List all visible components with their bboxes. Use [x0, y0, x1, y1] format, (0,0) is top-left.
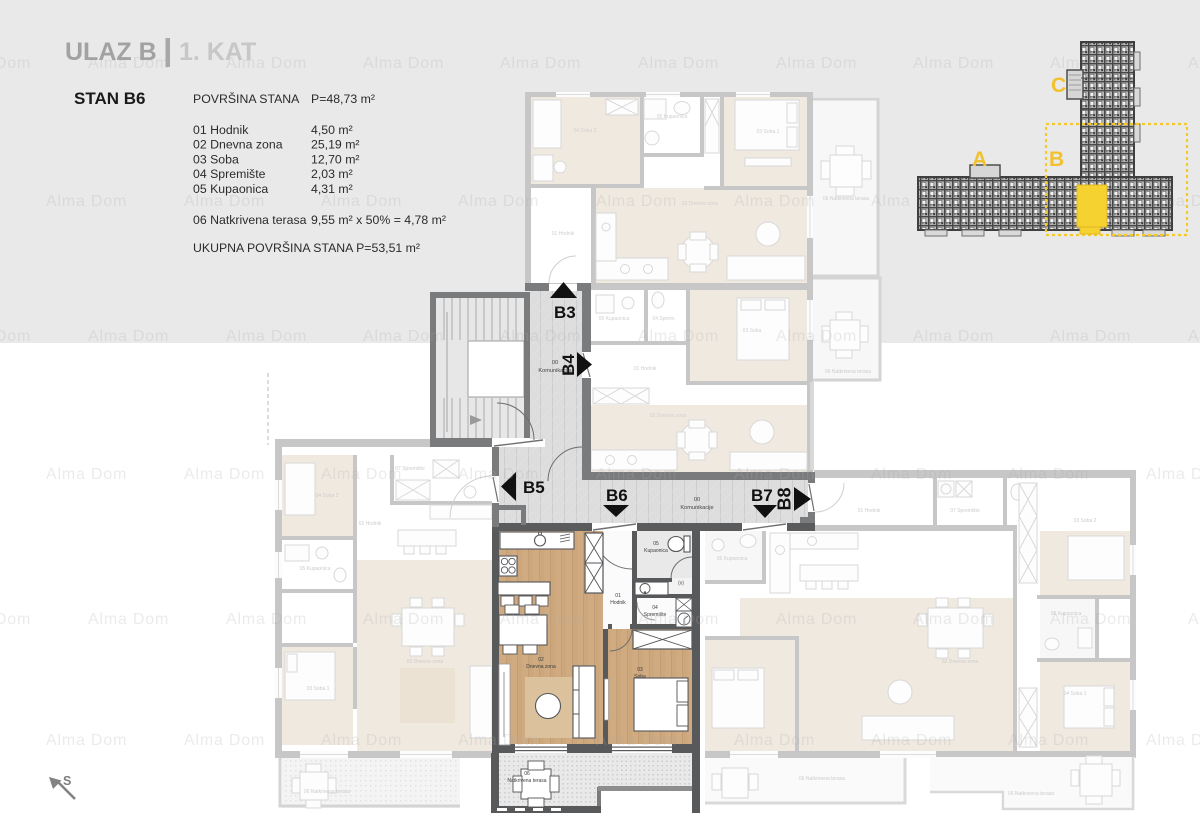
- svg-text:Alma Dom: Alma Dom: [734, 732, 815, 749]
- svg-text:01 Hodnik: 01 Hodnik: [634, 366, 657, 372]
- svg-text:Alma Dom: Alma Dom: [1008, 732, 1089, 749]
- svg-text:02 Dnevna zona: 02 Dnevna zona: [407, 659, 444, 665]
- svg-text:B8: B8: [775, 487, 795, 510]
- svg-text:05 Kupaonica: 05 Kupaonica: [717, 556, 748, 562]
- svg-text:03 Soba 2: 03 Soba 2: [1074, 518, 1097, 524]
- svg-text:Alma Dom: Alma Dom: [46, 466, 127, 483]
- svg-text:01 Hodnik: 01 Hodnik: [193, 123, 249, 137]
- svg-text:03 Soba: 03 Soba: [193, 152, 239, 166]
- svg-text:B6: B6: [606, 486, 628, 505]
- svg-text:Alma Dom: Alma Dom: [1146, 466, 1200, 483]
- svg-text:Natkrivena terasa: Natkrivena terasa: [507, 778, 546, 784]
- svg-text:Alma Dom: Alma Dom: [363, 611, 444, 628]
- svg-text:Alma Dom: Alma Dom: [1188, 328, 1200, 345]
- svg-text:06 Natkrivena terasa: 06 Natkrivena terasa: [825, 369, 871, 375]
- svg-text:B3: B3: [554, 303, 576, 322]
- svg-text:Alma Dom: Alma Dom: [226, 55, 307, 72]
- svg-text:2,03 m²: 2,03 m²: [311, 167, 353, 181]
- svg-text:Alma Dom: Alma Dom: [871, 732, 952, 749]
- svg-text:Alma Dom: Alma Dom: [184, 466, 265, 483]
- svg-text:03 Soba 1: 03 Soba 1: [757, 129, 780, 135]
- svg-text:06 Natkrivena terasa: 06 Natkrivena terasa: [799, 776, 845, 782]
- svg-text:B: B: [1049, 148, 1064, 171]
- svg-text:Alma Dom: Alma Dom: [913, 55, 994, 72]
- svg-text:Alma Dom: Alma Dom: [88, 611, 169, 628]
- svg-text:06 Natkrivena terasa: 06 Natkrivena terasa: [823, 196, 869, 202]
- svg-text:12,70 m²: 12,70 m²: [311, 152, 360, 166]
- svg-text:05 Kupaonica: 05 Kupaonica: [300, 566, 331, 572]
- svg-text:C: C: [1051, 74, 1066, 97]
- svg-text:(x): (x): [678, 581, 684, 587]
- svg-text:Alma Dom: Alma Dom: [363, 55, 444, 72]
- svg-text:00: 00: [694, 497, 700, 503]
- svg-text:Alma Dom: Alma Dom: [363, 328, 444, 345]
- svg-text:Alma Dom: Alma Dom: [0, 328, 31, 345]
- svg-text:Alma Dom: Alma Dom: [88, 328, 169, 345]
- svg-text:03: 03: [637, 667, 643, 673]
- svg-text:S: S: [63, 774, 71, 788]
- svg-text:02 Dnevna zona: 02 Dnevna zona: [942, 659, 979, 665]
- svg-text:Alma Dom: Alma Dom: [638, 328, 719, 345]
- svg-text:02 Dnevna zona: 02 Dnevna zona: [650, 413, 687, 419]
- svg-text:POVRŠINA STANA: POVRŠINA STANA: [193, 91, 300, 106]
- svg-text:05: 05: [653, 541, 659, 547]
- svg-text:06: 06: [524, 771, 530, 777]
- svg-text:05 Kupaonica: 05 Kupaonica: [599, 316, 630, 322]
- svg-text:4,50 m²: 4,50 m²: [311, 123, 353, 137]
- svg-text:Alma Dom: Alma Dom: [458, 732, 539, 749]
- svg-text:Alma Dom: Alma Dom: [1146, 732, 1200, 749]
- svg-text:04 Soba 1: 04 Soba 1: [1064, 691, 1087, 697]
- svg-text:Alma Dom: Alma Dom: [776, 55, 857, 72]
- svg-text:Alma Dom: Alma Dom: [1188, 611, 1200, 628]
- svg-text:A: A: [972, 148, 987, 171]
- svg-text:Alma Dom: Alma Dom: [184, 193, 265, 210]
- svg-text:02 Dnevna zona: 02 Dnevna zona: [193, 138, 283, 152]
- svg-text:Alma Dom: Alma Dom: [458, 466, 539, 483]
- svg-text:03 Soba: 03 Soba: [743, 328, 762, 334]
- svg-text:Alma Dom: Alma Dom: [638, 55, 719, 72]
- svg-text:B7: B7: [751, 486, 773, 505]
- svg-text:Alma Dom: Alma Dom: [596, 732, 677, 749]
- svg-text:Alma Dom: Alma Dom: [321, 732, 402, 749]
- svg-text:Alma Dom: Alma Dom: [321, 193, 402, 210]
- svg-text:UKUPNA POVRŠINA STANA P=53,51: UKUPNA POVRŠINA STANA P=53,51 m²: [193, 240, 420, 255]
- svg-text:00: 00: [552, 360, 558, 366]
- svg-text:Alma Dom: Alma Dom: [638, 611, 719, 628]
- svg-text:25,19 m²: 25,19 m²: [311, 138, 360, 152]
- svg-text:04 Spremište: 04 Spremište: [193, 167, 266, 181]
- svg-text:Dnevna zona: Dnevna zona: [526, 664, 556, 670]
- svg-text:07 Spremište: 07 Spremište: [950, 508, 980, 514]
- svg-text:01 Hodnik: 01 Hodnik: [552, 231, 575, 237]
- svg-text:STAN B6: STAN B6: [74, 89, 145, 108]
- svg-text:Alma Dom: Alma Dom: [0, 611, 31, 628]
- svg-text:04 Soba 2: 04 Soba 2: [316, 493, 339, 499]
- svg-text:04 Soba 2: 04 Soba 2: [574, 128, 597, 134]
- svg-text:Hodnik: Hodnik: [610, 600, 626, 606]
- svg-text:Alma Dom: Alma Dom: [0, 55, 31, 72]
- svg-text:06 Natkrivena terasa: 06 Natkrivena terasa: [304, 789, 350, 795]
- svg-text:05 Kupaonica: 05 Kupaonica: [657, 114, 688, 120]
- svg-text:01 Hodnik: 01 Hodnik: [359, 521, 382, 527]
- svg-text:01 Hodnik: 01 Hodnik: [858, 508, 881, 514]
- svg-text:Alma Dom: Alma Dom: [871, 466, 952, 483]
- svg-text:02: 02: [538, 657, 544, 663]
- svg-text:Kupaonica: Kupaonica: [644, 548, 668, 554]
- svg-text:9,55 m² x 50% = 4,78 m²: 9,55 m² x 50% = 4,78 m²: [311, 213, 446, 227]
- svg-text:Alma Dom: Alma Dom: [913, 328, 994, 345]
- svg-text:Komunikacije: Komunikacije: [680, 505, 713, 511]
- svg-text:Alma Dom: Alma Dom: [1050, 611, 1131, 628]
- svg-text:Alma Dom: Alma Dom: [46, 193, 127, 210]
- svg-text:01: 01: [615, 593, 621, 599]
- svg-text:06 Natkrivena terasa: 06 Natkrivena terasa: [1008, 791, 1054, 797]
- svg-text:04 Sprem.: 04 Sprem.: [652, 316, 675, 322]
- svg-text:Alma Dom: Alma Dom: [226, 328, 307, 345]
- svg-text:P=48,73 m²: P=48,73 m²: [311, 92, 375, 106]
- svg-text:Alma Dom: Alma Dom: [734, 193, 815, 210]
- svg-text:Alma Dom: Alma Dom: [500, 55, 581, 72]
- svg-text:Alma Dom: Alma Dom: [1050, 328, 1131, 345]
- svg-text:Alma Dom: Alma Dom: [913, 611, 994, 628]
- svg-text:Alma Dom: Alma Dom: [46, 732, 127, 749]
- svg-text:Soba: Soba: [634, 674, 646, 680]
- svg-text:Alma Dom: Alma Dom: [776, 328, 857, 345]
- svg-text:Alma Dom: Alma Dom: [500, 611, 581, 628]
- svg-text:Alma Dom: Alma Dom: [226, 611, 307, 628]
- svg-text:Alma Dom: Alma Dom: [596, 193, 677, 210]
- svg-text:Alma Dom: Alma Dom: [500, 328, 581, 345]
- svg-text:Alma Dom: Alma Dom: [321, 466, 402, 483]
- svg-text:Alma Dom: Alma Dom: [596, 466, 677, 483]
- svg-text:06 Natkrivena terasa: 06 Natkrivena terasa: [193, 213, 307, 227]
- svg-text:B4: B4: [559, 354, 578, 376]
- svg-text:Alma Dom: Alma Dom: [184, 732, 265, 749]
- svg-text:Alma Dom: Alma Dom: [1188, 55, 1200, 72]
- svg-text:Alma Dom: Alma Dom: [88, 55, 169, 72]
- svg-text:02 Dnevna zona: 02 Dnevna zona: [682, 201, 719, 207]
- svg-text:Alma Dom: Alma Dom: [734, 466, 815, 483]
- svg-text:Alma Dom: Alma Dom: [458, 193, 539, 210]
- svg-text:Alma Dom: Alma Dom: [1008, 466, 1089, 483]
- svg-text:03 Soba 1: 03 Soba 1: [307, 686, 330, 692]
- svg-text:Alma Dom: Alma Dom: [776, 611, 857, 628]
